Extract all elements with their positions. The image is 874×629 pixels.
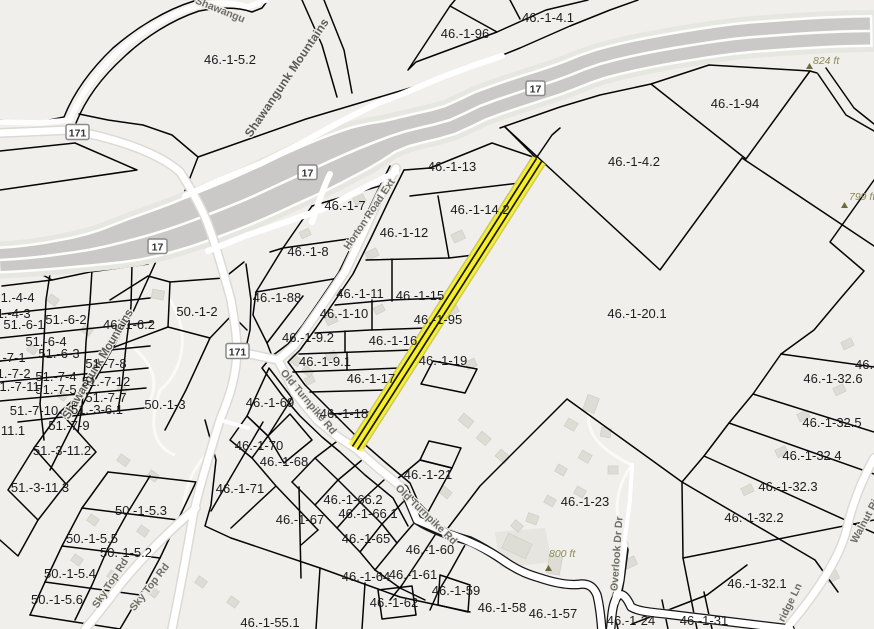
svg-text:46.-1-8: 46.-1-8 bbox=[287, 244, 328, 259]
svg-text:51.-7-9: 51.-7-9 bbox=[48, 418, 89, 433]
svg-text:50.-1-3: 50.-1-3 bbox=[144, 397, 185, 412]
svg-text:51.-3-11.3: 51.-3-11.3 bbox=[11, 480, 69, 495]
svg-text:46.-1-59: 46.-1-59 bbox=[432, 583, 480, 598]
svg-text:50.-1-5.4: 50.-1-5.4 bbox=[44, 566, 96, 581]
svg-text:11.1: 11.1 bbox=[1, 423, 25, 438]
svg-text:46.-1-32.4: 46.-1-32.4 bbox=[782, 448, 841, 463]
svg-text:51.-7-5: 51.-7-5 bbox=[35, 382, 76, 397]
svg-text:46.-1-9.2: 46.-1-9.2 bbox=[282, 330, 334, 345]
svg-text:46.-1-69: 46.-1-69 bbox=[246, 395, 294, 410]
svg-text:46.-1-32.1: 46.-1-32.1 bbox=[727, 576, 786, 591]
svg-text:46.-1-23: 46.-1-23 bbox=[561, 494, 609, 509]
svg-text:46.-1-95: 46.-1-95 bbox=[414, 312, 462, 327]
svg-text:799 ft: 799 ft bbox=[849, 191, 874, 203]
svg-text:46.-1-67: 46.-1-67 bbox=[276, 512, 324, 527]
svg-text:17: 17 bbox=[152, 242, 164, 254]
svg-text:51.-6-3: 51.-6-3 bbox=[38, 346, 79, 361]
svg-text:46.-1-58: 46.-1-58 bbox=[478, 600, 526, 615]
svg-text:46.-1-14.2: 46.-1-14.2 bbox=[450, 202, 509, 217]
svg-text:46.-1-60: 46.-1-60 bbox=[406, 542, 454, 557]
svg-text:46.-1-55.1: 46.-1-55.1 bbox=[240, 615, 299, 629]
svg-text:46.-1-15: 46.-1-15 bbox=[396, 288, 444, 303]
svg-text:800 ft: 800 ft bbox=[549, 548, 576, 560]
svg-text:50.-1-5.5: 50.-1-5.5 bbox=[66, 531, 118, 546]
svg-text:46.-1-19: 46.-1-19 bbox=[419, 353, 467, 368]
svg-text:50.-1-2: 50.-1-2 bbox=[176, 304, 217, 319]
svg-text:46.-1-12: 46.-1-12 bbox=[380, 225, 428, 240]
svg-text:46.-1-61: 46.-1-61 bbox=[389, 567, 437, 582]
svg-text:46.-1-16: 46.-1-16 bbox=[369, 333, 417, 348]
svg-text:46.-1-13: 46.-1-13 bbox=[428, 159, 476, 174]
svg-text:46.-1-32.5: 46.-1-32.5 bbox=[802, 415, 861, 430]
svg-text:46.-1-4.2: 46.-1-4.2 bbox=[608, 154, 660, 169]
svg-text:46.-1-57: 46.-1-57 bbox=[529, 606, 577, 621]
svg-text:50.-1-5.3: 50.-1-5.3 bbox=[115, 503, 167, 518]
svg-text:46.-1-64: 46.-1-64 bbox=[342, 569, 390, 584]
svg-text:46.-1-20.1: 46.-1-20.1 bbox=[607, 306, 666, 321]
svg-text:51.-4-4: 51.-4-4 bbox=[0, 290, 35, 305]
svg-text:50.-1-5.6: 50.-1-5.6 bbox=[31, 592, 83, 607]
svg-text:51.-7-1: 51.-7-1 bbox=[0, 350, 26, 365]
svg-text:51.-4-3: 51.-4-3 bbox=[0, 306, 31, 321]
svg-text:51.-7-10: 51.-7-10 bbox=[10, 403, 58, 418]
svg-text:46.-1-5.2: 46.-1-5.2 bbox=[204, 52, 256, 67]
svg-text:50.-1-5.2: 50.-1-5.2 bbox=[100, 545, 152, 560]
svg-text:46.-1-3: 46.-1-3 bbox=[855, 357, 874, 372]
svg-text:51.-7-8: 51.-7-8 bbox=[85, 356, 126, 371]
svg-text:46.-1-31: 46.-1-31 bbox=[680, 613, 728, 628]
svg-text:46.-1-94: 46.-1-94 bbox=[711, 96, 759, 111]
svg-text:51.-6-2: 51.-6-2 bbox=[45, 312, 86, 327]
svg-text:17: 17 bbox=[530, 84, 542, 96]
svg-text:171: 171 bbox=[229, 347, 247, 359]
svg-text:46.-1-68: 46.-1-68 bbox=[260, 454, 308, 469]
svg-text:46.-1-32.2: 46.-1-32.2 bbox=[724, 510, 783, 525]
svg-text:51.-3-6.1: 51.-3-6.1 bbox=[71, 402, 123, 417]
svg-text:46.-1-24: 46.-1-24 bbox=[607, 613, 655, 628]
svg-text:46.-1-71: 46.-1-71 bbox=[216, 481, 264, 496]
svg-text:46.-1-18: 46.-1-18 bbox=[320, 406, 368, 421]
svg-text:46.-1-7: 46.-1-7 bbox=[324, 198, 365, 213]
svg-text:51.-7-12: 51.-7-12 bbox=[82, 374, 130, 389]
svg-text:46.-1-32.3: 46.-1-32.3 bbox=[758, 479, 817, 494]
svg-text:46.-1-66.1: 46.-1-66.1 bbox=[338, 506, 397, 521]
svg-text:46.-1-65: 46.-1-65 bbox=[342, 531, 390, 546]
svg-text:51.-3-11.2: 51.-3-11.2 bbox=[33, 443, 91, 458]
svg-text:46.-1-66.2: 46.-1-66.2 bbox=[323, 492, 382, 507]
svg-text:46.-1-32.6: 46.-1-32.6 bbox=[803, 371, 862, 386]
svg-text:46.-1-21: 46.-1-21 bbox=[404, 467, 452, 482]
svg-text:46.-1-11: 46.-1-11 bbox=[336, 286, 383, 301]
svg-text:17: 17 bbox=[302, 168, 314, 180]
svg-text:46.-1-88: 46.-1-88 bbox=[253, 290, 301, 305]
svg-text:46.-1-6.2: 46.-1-6.2 bbox=[103, 317, 155, 332]
svg-text:46.-1-17: 46.-1-17 bbox=[347, 371, 395, 386]
svg-text:46.-1-9.1: 46.-1-9.1 bbox=[299, 354, 351, 369]
svg-text:46.-1-10: 46.-1-10 bbox=[320, 306, 368, 321]
svg-text:46.-1-70: 46.-1-70 bbox=[235, 438, 283, 453]
svg-text:824 ft: 824 ft bbox=[813, 55, 840, 67]
svg-text:171: 171 bbox=[69, 128, 87, 140]
svg-text:46.-1-62: 46.-1-62 bbox=[370, 595, 418, 610]
svg-text:46.-1-96: 46.-1-96 bbox=[441, 26, 489, 41]
svg-text:46.-1-4.1: 46.-1-4.1 bbox=[522, 10, 574, 25]
svg-text:51.-7-11: 51.-7-11 bbox=[0, 379, 40, 394]
